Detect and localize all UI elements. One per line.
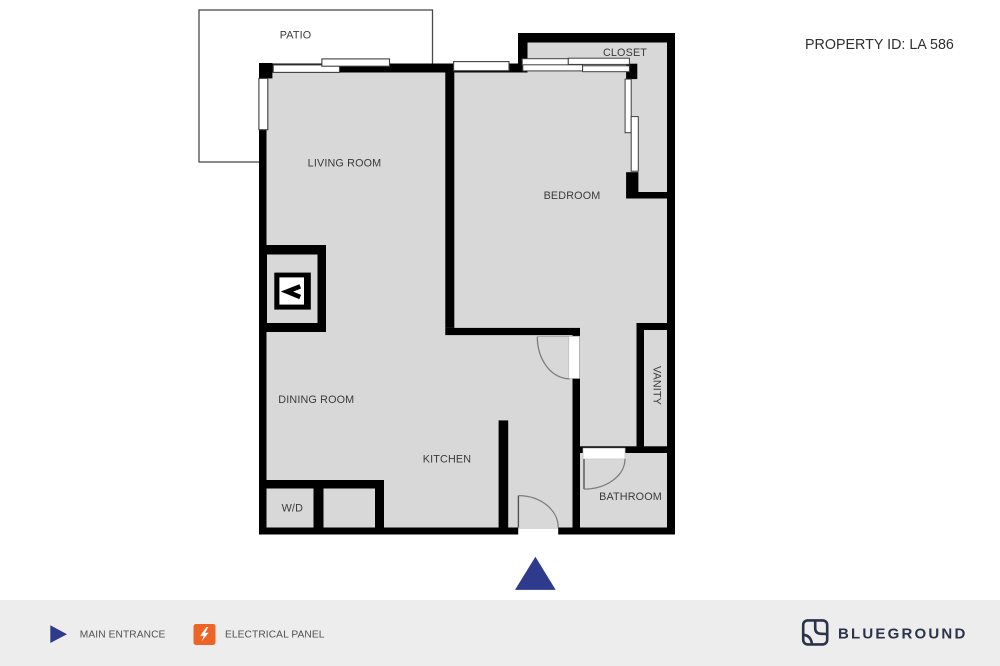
svg-text:PATIO: PATIO (280, 30, 312, 42)
svg-text:VANITY: VANITY (650, 366, 662, 405)
svg-text:BATHROOM: BATHROOM (599, 491, 662, 503)
svg-text:CLOSET: CLOSET (603, 47, 647, 59)
svg-text:ELECTRICAL PANEL: ELECTRICAL PANEL (225, 630, 325, 641)
svg-text:BLUEGROUND: BLUEGROUND (838, 626, 968, 643)
svg-text:DINING ROOM: DINING ROOM (278, 394, 354, 406)
svg-text:PROPERTY ID: LA 586: PROPERTY ID: LA 586 (805, 37, 954, 53)
svg-text:KITCHEN: KITCHEN (423, 454, 471, 466)
svg-text:LIVING ROOM: LIVING ROOM (308, 157, 382, 169)
svg-text:MAIN ENTRANCE: MAIN ENTRANCE (80, 630, 166, 641)
svg-text:BEDROOM: BEDROOM (544, 190, 601, 202)
svg-text:W/D: W/D (282, 503, 303, 515)
